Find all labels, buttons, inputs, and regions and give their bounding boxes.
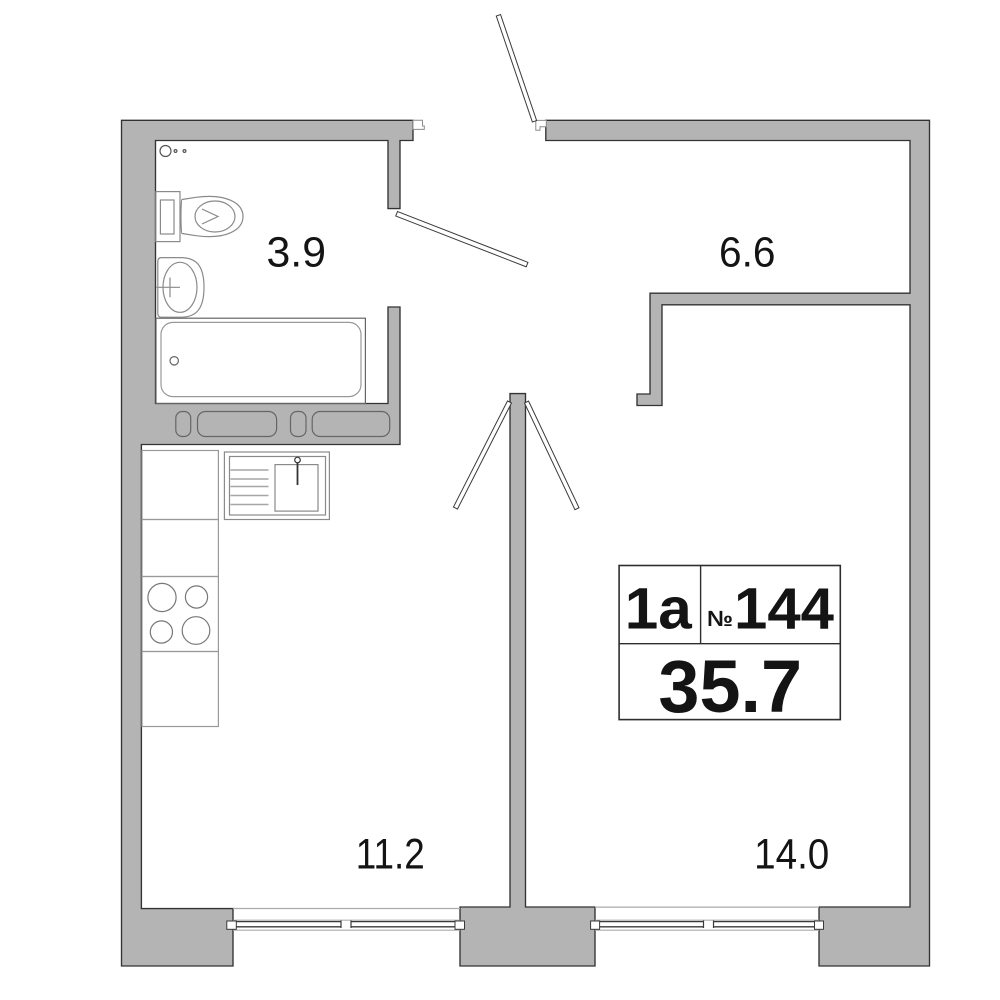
svg-text:3.9: 3.9	[267, 230, 327, 277]
svg-text:1a: 1a	[625, 577, 693, 642]
svg-text:№: №	[707, 606, 733, 631]
svg-text:14.0: 14.0	[754, 831, 829, 878]
svg-text:6.6: 6.6	[719, 230, 776, 277]
svg-text:35.7: 35.7	[658, 645, 802, 728]
svg-text:144: 144	[734, 577, 834, 642]
svg-text:11.2: 11.2	[356, 831, 425, 878]
